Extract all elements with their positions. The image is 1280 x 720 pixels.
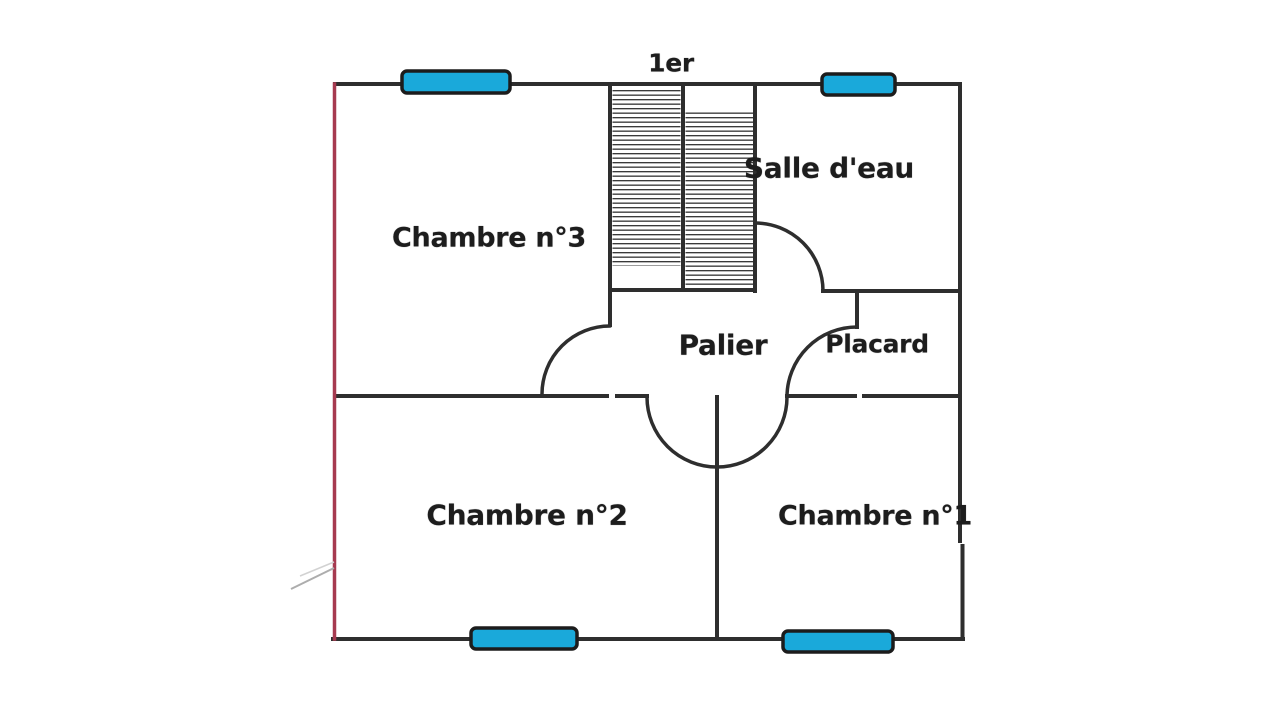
staircase-hatch-right [686, 111, 754, 288]
room-label-placard: Placard [825, 330, 929, 359]
window-bottom-left [471, 628, 577, 649]
window-bottom-right [783, 631, 893, 652]
staircase-hatch-left [613, 87, 681, 266]
room-label-chambre3: Chambre n°3 [392, 223, 586, 254]
room-label-salle-eau: Salle d'eau [744, 152, 914, 185]
door-arc-chambre3 [542, 326, 610, 394]
window-top-left [402, 71, 510, 93]
floor-plan-drawing [0, 0, 1280, 720]
room-label-palier: Palier [679, 329, 768, 362]
window-top-right [822, 74, 895, 95]
door-arc-salle-eau [755, 223, 823, 291]
room-label-chambre2: Chambre n°2 [426, 499, 627, 532]
scan-scratch-line-2 [300, 562, 334, 576]
floor-plan-page: 1er Chambre n°3 Salle d'eau Palier Placa… [0, 0, 1280, 720]
floor-label: 1er [648, 49, 694, 78]
room-label-chambre1: Chambre n°1 [778, 501, 972, 532]
